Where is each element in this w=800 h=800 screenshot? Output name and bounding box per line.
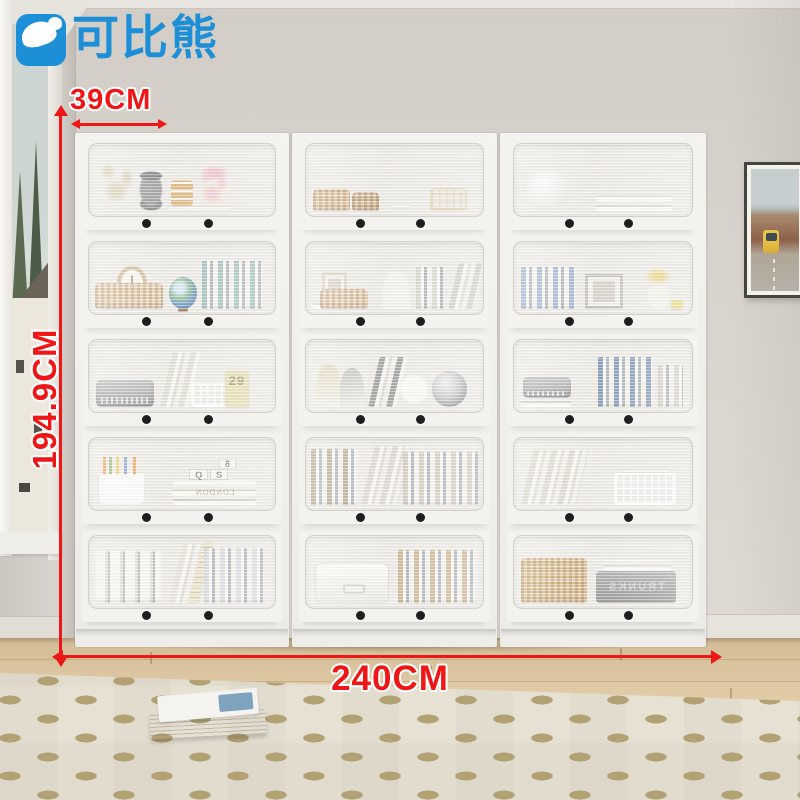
door-knob (204, 415, 213, 424)
cube-item: Q (189, 469, 208, 481)
vbooks-item (598, 357, 653, 407)
vbooks-item (311, 449, 359, 505)
vbooks-item (521, 267, 574, 309)
door-knob (142, 611, 151, 620)
art-item (340, 368, 365, 407)
item-label: LONDON (195, 488, 235, 497)
plate-item (400, 371, 428, 407)
shelf-contents: LONDONQS8 (89, 438, 275, 510)
pencup-item (98, 472, 145, 505)
basket-item (320, 289, 368, 309)
shelf-contents: TRUNKS (514, 536, 692, 608)
door-knob (204, 317, 213, 326)
flowers-item (195, 165, 232, 211)
cabinet-cell-u2r1 (299, 139, 490, 230)
width-dimension-label: 240CM (290, 659, 490, 699)
book-cover-art (218, 692, 253, 712)
shelf-contents (306, 536, 483, 608)
depth-dimension-label: 39CM (70, 84, 151, 117)
shelf-contents (306, 438, 483, 510)
right-wall-shade (730, 0, 800, 640)
door-knob (356, 611, 365, 620)
cabinet-cell-u2r5 (299, 531, 490, 622)
door-knob (356, 415, 365, 424)
shelf-contents (89, 536, 275, 608)
vbooks-item (658, 365, 683, 407)
wirebasket-item (430, 188, 467, 211)
radio-item (523, 377, 571, 399)
door-knob (142, 513, 151, 522)
door-knob (356, 513, 365, 522)
vbooks-item (403, 452, 477, 505)
cabinet-cell-u1r1 (82, 139, 282, 230)
door-knob (624, 611, 633, 620)
product-scene: 29LONDONQS8TRUNKS 可比熊 39CM 194.9CM 240CM (0, 0, 800, 800)
width-dimension-line (63, 655, 711, 658)
vbooks-item (202, 261, 263, 309)
shelf-contents (514, 144, 692, 216)
lean-item (448, 263, 483, 309)
cabinet-plinth (76, 629, 288, 647)
lamp-item (526, 171, 569, 211)
wirebasket-item (614, 473, 676, 505)
item-label: TRUNKS (607, 581, 665, 593)
item-label: Q (195, 470, 202, 480)
shelf-contents (306, 340, 483, 412)
door-knob (565, 219, 574, 228)
art-item (317, 364, 342, 407)
brand-bear-logo-icon (16, 14, 66, 66)
door-knob (624, 219, 633, 228)
door-knob (565, 317, 574, 326)
fluted-glass-door (513, 241, 693, 315)
stack-item (171, 180, 193, 206)
door-knob (416, 415, 425, 424)
fluted-glass-door (305, 339, 484, 413)
cabinet-cell-u1r3: 29 (82, 335, 282, 426)
door-knob (204, 219, 213, 228)
trunk-item: TRUNKS (596, 571, 676, 603)
picture-photo (751, 169, 799, 291)
cabinet-cell-u3r1 (507, 139, 699, 230)
door-knob (416, 317, 425, 326)
shelf-contents (306, 242, 483, 314)
binders-item (95, 551, 162, 603)
fluted-glass-door (305, 241, 484, 315)
fluted-glass-door (305, 143, 484, 217)
vbooks-item (204, 548, 265, 603)
cabinet-cell-u2r3 (299, 335, 490, 426)
fluted-glass-door: TRUNKS (513, 535, 693, 609)
shelf-contents (89, 242, 275, 314)
door-knob (624, 513, 633, 522)
cabinet-cell-u1r2 (82, 237, 282, 328)
vbooks-item (398, 550, 478, 603)
height-dimension-label: 194.9CM (26, 284, 64, 514)
door-knob (204, 513, 213, 522)
pebbles-item (139, 171, 163, 211)
basket-item (521, 558, 587, 603)
hstack-item (521, 398, 571, 407)
shelf-contents: 29 (89, 340, 275, 412)
yellow-van (763, 230, 778, 253)
lean-item (521, 450, 589, 505)
basket-item (313, 189, 350, 211)
figurine-item (382, 272, 410, 309)
fluted-glass-door: LONDONQS8 (88, 437, 276, 511)
cube-item: 8 (219, 459, 236, 469)
door-knob (565, 415, 574, 424)
fluted-glass-door (88, 535, 276, 609)
cabinet-cell-u1r4: LONDONQS8 (82, 433, 282, 524)
hstack-item (596, 195, 673, 211)
cabinet-cell-u3r4 (507, 433, 699, 524)
cabinet-cell-u3r5: TRUNKS (507, 531, 699, 622)
shelf-contents (514, 438, 692, 510)
door-knob (565, 611, 574, 620)
fluted-glass-door (513, 437, 693, 511)
door-knob (624, 415, 633, 424)
box-item (315, 563, 389, 603)
globe-item (169, 277, 197, 309)
cabinet-cell-u1r5 (82, 531, 282, 622)
fluted-glass-door (513, 339, 693, 413)
shelf-contents (89, 144, 275, 216)
cabinet-unit-2 (292, 133, 497, 647)
basket-item (95, 283, 164, 309)
door-knob (356, 219, 365, 228)
fluted-glass-door (305, 437, 484, 511)
shelf-contents (306, 144, 483, 216)
door-knob (416, 219, 425, 228)
basket-item (352, 192, 379, 211)
cabinet-unit-3: TRUNKS (500, 133, 706, 647)
shelf-contents (514, 242, 692, 314)
door-knob (142, 317, 151, 326)
cabinet-cell-u3r3 (507, 335, 699, 426)
card-item (671, 300, 683, 309)
door-knob (204, 611, 213, 620)
door-knob (565, 513, 574, 522)
sphere-item (432, 371, 467, 407)
window-frame-outer (0, 0, 12, 556)
item-label: 8 (225, 459, 230, 469)
frame-item (585, 274, 622, 309)
cabinet-plinth (501, 629, 705, 647)
item-label: 29 (229, 373, 245, 388)
item-label: S (216, 470, 222, 480)
cabinet-cell-u3r2 (507, 237, 699, 328)
shelf-contents (514, 340, 692, 412)
wall-picture-frame (744, 162, 800, 298)
flowers-item (95, 158, 140, 211)
fluted-glass-door (88, 143, 276, 217)
door-knob (624, 317, 633, 326)
fluted-glass-door (88, 241, 276, 315)
fluted-glass-door (513, 143, 693, 217)
cabinet-plinth (293, 629, 496, 647)
depth-dimension-arrow (80, 123, 158, 126)
fluted-glass-door (305, 535, 484, 609)
tray-item (621, 469, 669, 473)
vase-item (648, 286, 669, 309)
cabinet-cell-u2r4 (299, 433, 490, 524)
tray-item (389, 204, 412, 208)
door-knob (416, 611, 425, 620)
brand-name: 可比熊 (72, 10, 219, 66)
door-knob (356, 317, 365, 326)
ceiling (0, 0, 800, 9)
door-knob (416, 513, 425, 522)
door-knob (142, 415, 151, 424)
vbooks-item (416, 267, 444, 309)
radio-item (96, 380, 154, 407)
fluted-glass-door: 29 (88, 339, 276, 413)
hstack-item: LONDON (173, 481, 257, 505)
floor-plank-seam (730, 688, 732, 700)
cube-item: S (210, 469, 229, 481)
picture-mat (747, 165, 800, 295)
card-item: 29 (225, 371, 249, 407)
cabinet-cell-u2r2 (299, 237, 490, 328)
door-knob (142, 219, 151, 228)
wirebasket-item (191, 383, 226, 407)
hstack-item (603, 560, 671, 572)
cabinet-unit-1: 29LONDONQS8 (75, 133, 289, 647)
window-sill (0, 532, 62, 554)
